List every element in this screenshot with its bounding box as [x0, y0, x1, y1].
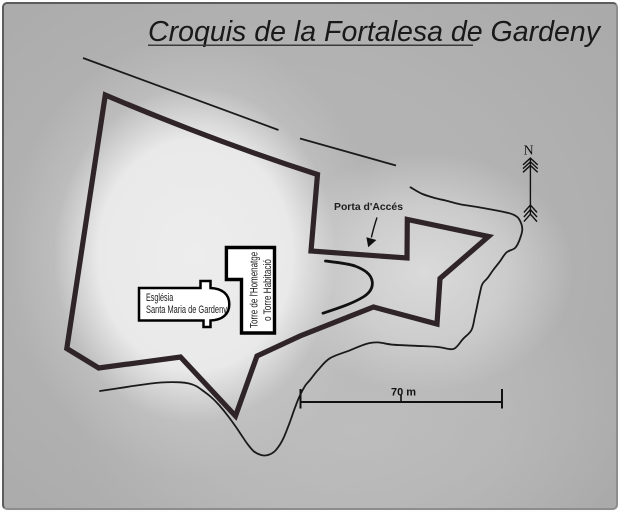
svg-text:N: N	[524, 144, 534, 159]
svg-text:Santa Maria de Gardeny: Santa Maria de Gardeny	[146, 304, 227, 316]
svg-text:Porta d'Accés: Porta d'Accés	[334, 201, 403, 213]
svg-text:Torre de l'Homenatge: Torre de l'Homenatge	[248, 252, 260, 328]
svg-text:Croquis de la Fortalesa de Gar: Croquis de la Fortalesa de Gardeny	[148, 16, 602, 48]
svg-text:Església: Església	[146, 291, 174, 303]
svg-text:70 m: 70 m	[391, 387, 416, 399]
svg-text:o Torre Habitació: o Torre Habitació	[262, 259, 274, 321]
